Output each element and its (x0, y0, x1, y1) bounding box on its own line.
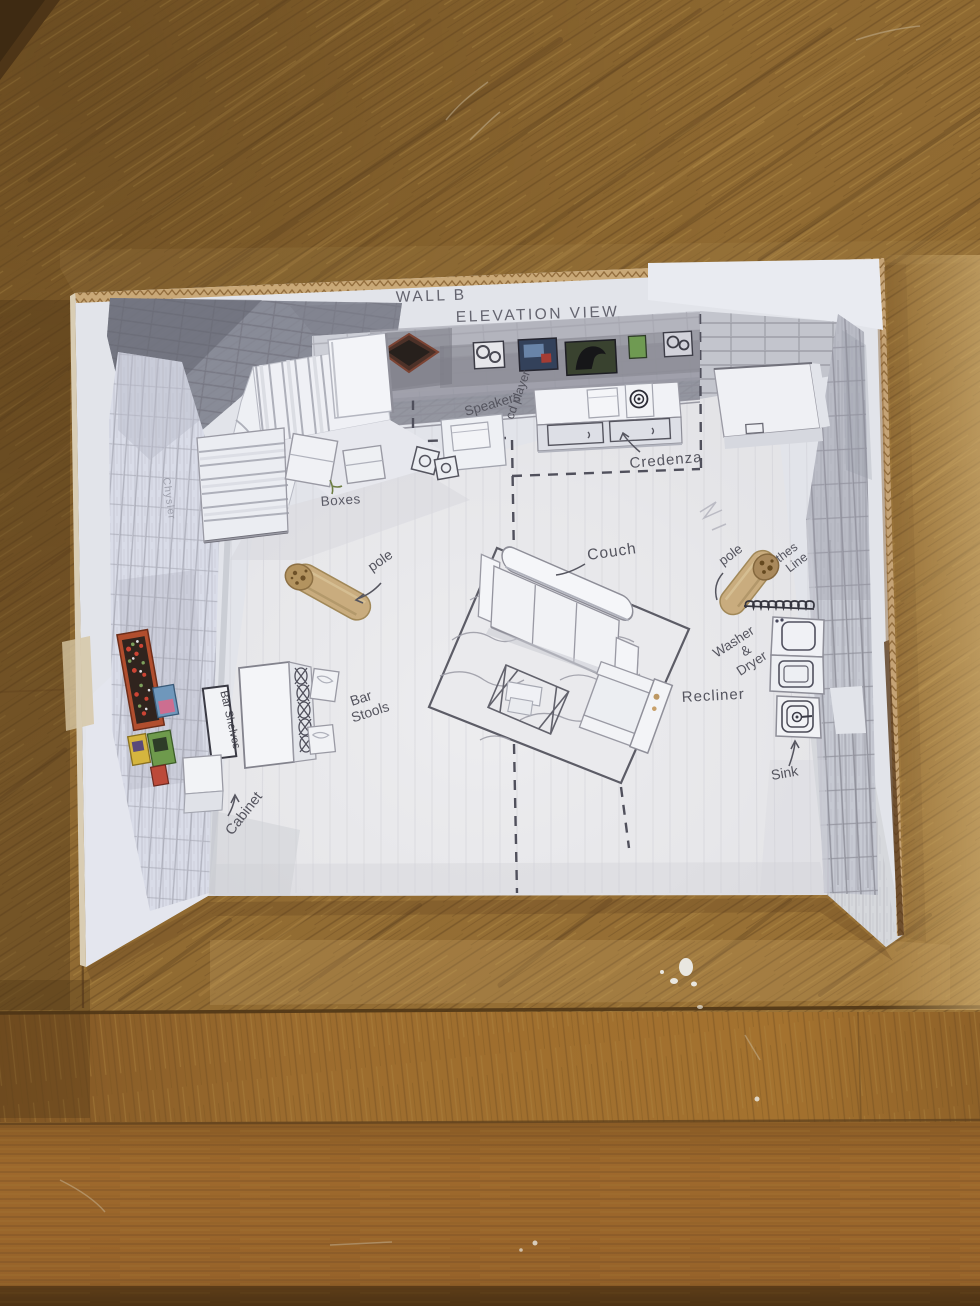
svg-text:Boxes: Boxes (320, 491, 361, 509)
svg-text:WALL B: WALL B (396, 287, 467, 306)
svg-text:Recliner: Recliner (681, 686, 745, 706)
